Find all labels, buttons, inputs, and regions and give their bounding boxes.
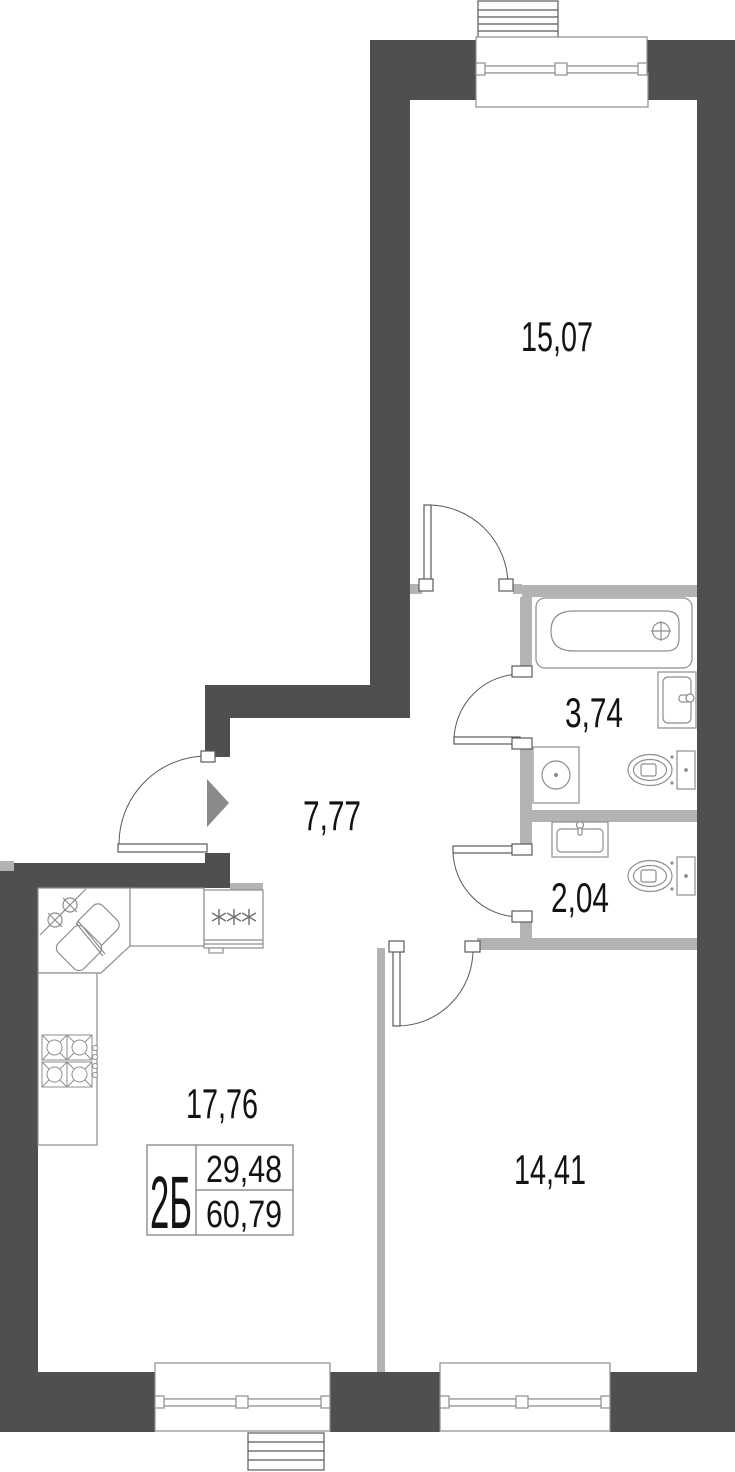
wall-left — [0, 868, 38, 1432]
wall-bottom-1 — [0, 1372, 155, 1432]
wall-top-left — [370, 40, 476, 100]
washbasin-wc-icon — [552, 822, 608, 858]
partition-wc-left-lower — [520, 922, 532, 938]
room-label-bathroom: 3,74 — [565, 689, 623, 736]
partition-wc-bottom — [477, 938, 697, 950]
door-wc-icon — [453, 844, 532, 922]
partition-wc-left-upper — [520, 822, 532, 844]
unit-type-label: 2Б — [150, 1161, 192, 1244]
partition-room15-right — [513, 584, 522, 594]
balcony-door-icon — [478, 1, 558, 38]
unit-area-bottom: 60,79 — [206, 1194, 282, 1236]
doors — [118, 505, 532, 1026]
door-bathroom-icon — [454, 666, 532, 749]
unit-card: 2Б 29,48 60,79 — [147, 1145, 293, 1244]
unit-area-top: 29,48 — [206, 1149, 282, 1191]
wall-upper-left — [370, 100, 410, 685]
washbasin-bath-icon — [658, 672, 696, 728]
door-entrance-icon — [118, 751, 215, 852]
toilet-bath-icon — [628, 751, 695, 789]
wall-right — [697, 40, 735, 1432]
room-label-kitchen-living: 17,76 — [186, 1080, 258, 1127]
partition-bath-left-upper — [520, 597, 532, 668]
partition-bath-wc — [532, 810, 697, 822]
room-label-bedroom-top: 15,07 — [521, 313, 593, 360]
window-top-icon — [476, 37, 648, 107]
window-bottom-right-icon — [440, 1363, 610, 1431]
exterior-basket-icon — [248, 1433, 324, 1470]
bathtub-icon — [536, 598, 692, 668]
corner-sink-icon — [38, 888, 130, 973]
room-label-hallway: 7,77 — [303, 792, 361, 839]
toilet-wc-icon — [628, 857, 695, 895]
fridge-icon — [204, 890, 263, 953]
partition-entry-stub — [0, 861, 14, 871]
wall-bottom-3 — [610, 1372, 735, 1432]
partition-bath-left-lower — [520, 749, 532, 822]
wall-hall-top — [205, 685, 410, 718]
wall-bottom-2 — [330, 1372, 440, 1432]
room-label-wc: 2,04 — [551, 874, 609, 921]
room-label-bedroom-bottom: 14,41 — [514, 1146, 586, 1193]
partition-room14-left — [377, 948, 385, 1372]
entrance-arrow-icon — [207, 779, 229, 827]
window-bottom-left-icon — [155, 1363, 330, 1431]
door-bedroom-top-icon — [419, 505, 513, 591]
door-bedroom-bottom-icon — [389, 941, 480, 1026]
washing-machine-icon — [533, 747, 579, 803]
kitchen-counter-top — [130, 888, 204, 946]
partition-bath-top — [522, 585, 697, 597]
floor-plan-svg: 15,07 3,74 7,77 2,04 17,76 14,41 2Б 29,4… — [0, 0, 735, 1472]
floor-plan-page: 15,07 3,74 7,77 2,04 17,76 14,41 2Б 29,4… — [0, 0, 735, 1472]
exterior-walls — [0, 40, 735, 1432]
